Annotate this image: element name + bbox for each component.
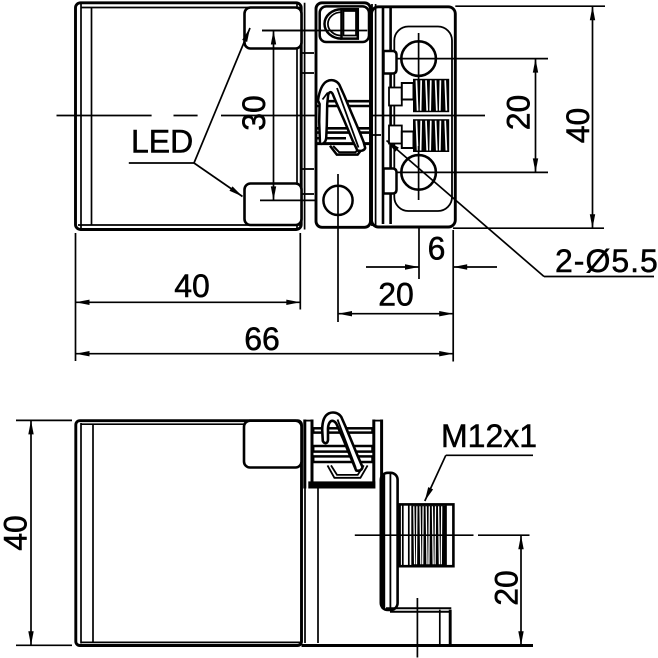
svg-text:2-Ø5.5: 2-Ø5.5 xyxy=(555,243,658,279)
svg-text:66: 66 xyxy=(244,321,280,357)
svg-text:40: 40 xyxy=(174,268,210,304)
svg-text:30: 30 xyxy=(236,95,272,131)
svg-text:6: 6 xyxy=(428,231,446,267)
svg-text:20: 20 xyxy=(501,95,537,131)
svg-text:LED: LED xyxy=(131,124,193,160)
svg-text:40: 40 xyxy=(0,515,34,551)
svg-text:20: 20 xyxy=(489,570,525,606)
svg-text:20: 20 xyxy=(378,277,414,313)
svg-text:40: 40 xyxy=(560,108,596,144)
svg-text:M12x1: M12x1 xyxy=(441,418,537,454)
